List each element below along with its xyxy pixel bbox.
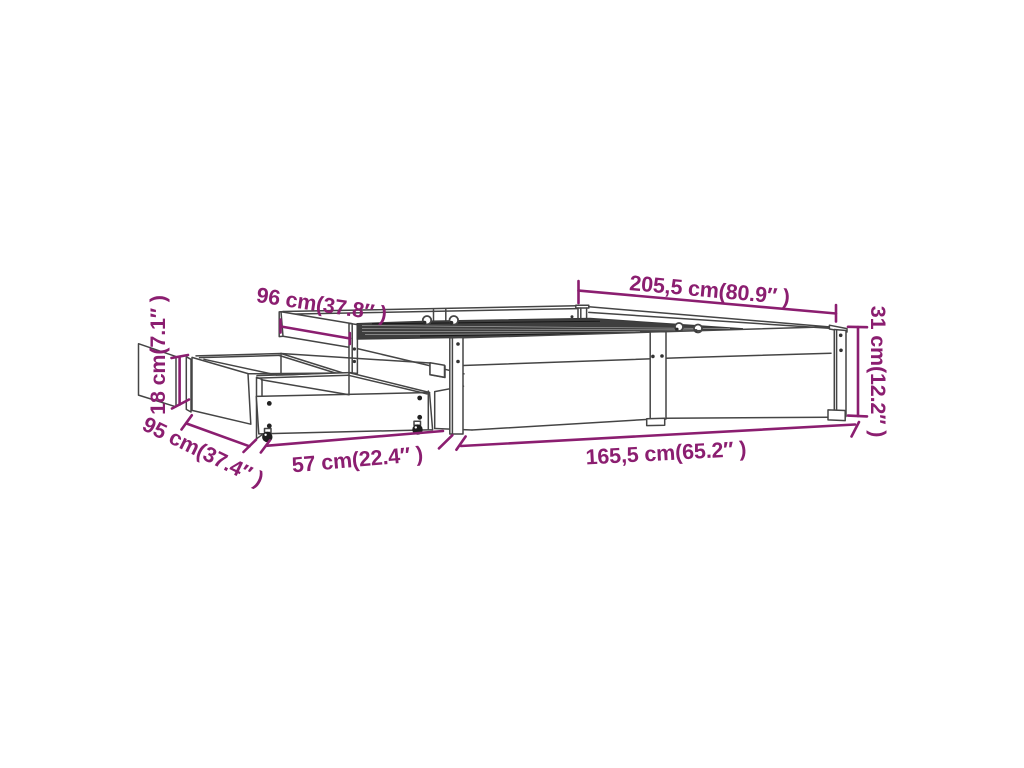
svg-text:165,5 cm(65.2″ ): 165,5 cm(65.2″ )	[585, 437, 747, 470]
svg-text:57 cm(22.4″ ): 57 cm(22.4″ )	[291, 442, 424, 477]
svg-text:18 cm(7.1″ ): 18 cm(7.1″ )	[146, 295, 170, 415]
svg-text:31 cm(12.2″ ): 31 cm(12.2″ )	[866, 306, 890, 437]
